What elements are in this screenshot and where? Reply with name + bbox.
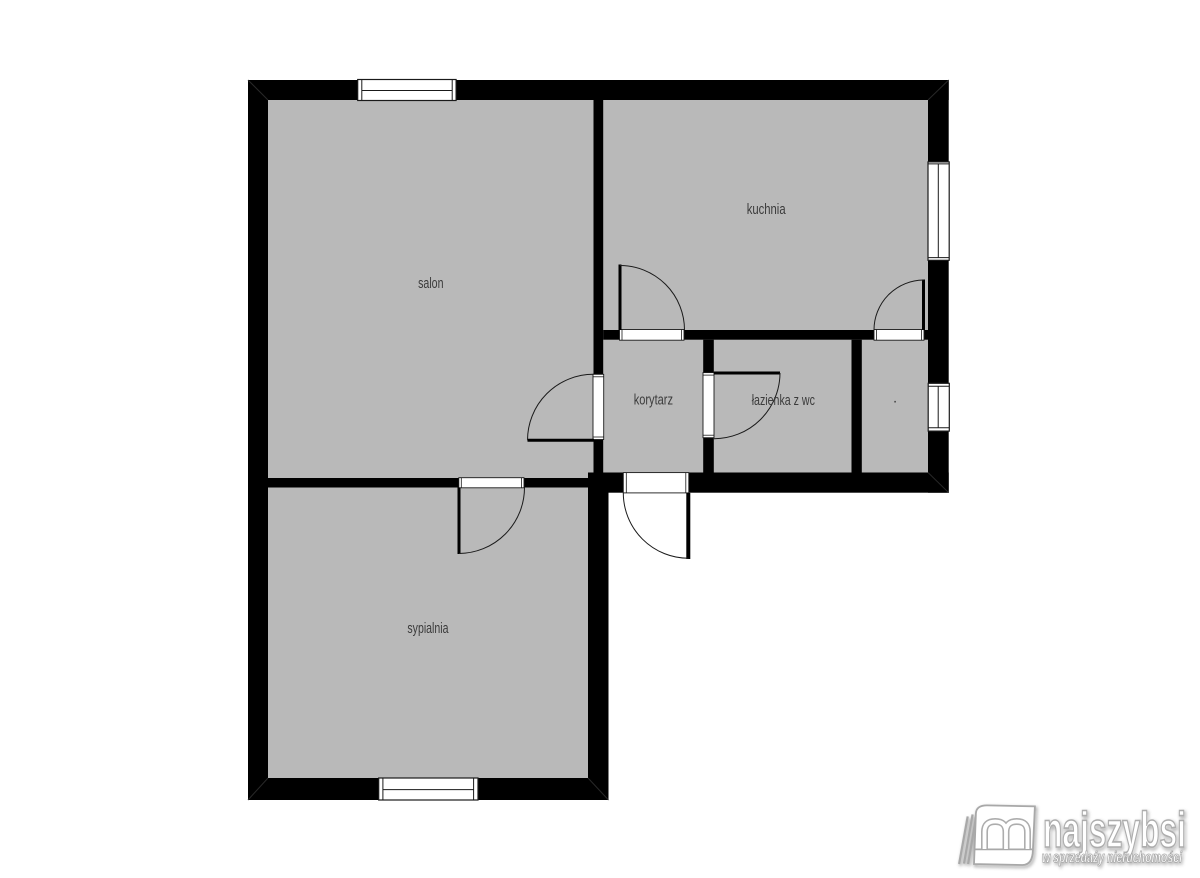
svg-text:.: . <box>893 390 897 407</box>
svg-text:łazienka z wc: łazienka z wc <box>752 392 816 409</box>
svg-text:sypialnia: sypialnia <box>407 620 449 637</box>
svg-text:korytarz: korytarz <box>634 391 673 408</box>
svg-text:salon: salon <box>418 275 443 292</box>
svg-text:kuchnia: kuchnia <box>747 201 786 218</box>
svg-text:w sprzedaży nieruchomości: w sprzedaży nieruchomości <box>1042 850 1182 867</box>
